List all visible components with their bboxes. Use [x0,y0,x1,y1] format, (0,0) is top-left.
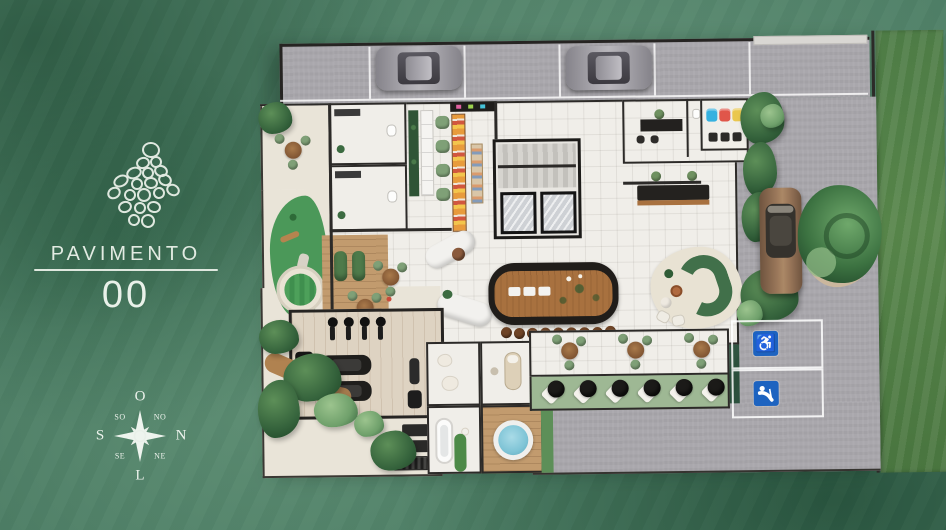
bar-stool [514,328,525,339]
lounger-seat [644,379,661,396]
market-fridge-counter [450,101,496,112]
patio-table [285,142,302,159]
terrace-table [627,341,644,358]
terrace-chair [564,360,574,370]
hedge-tree-light [760,104,784,128]
compass-southeast-label: SE [115,452,125,461]
bar-stool [501,327,512,338]
market-gondola-shelf [451,114,466,232]
patio-chair [275,134,285,144]
reception-chair [687,171,697,181]
reception-desk-front [637,200,709,206]
compass-rose: O N L S NO NE SE SO [92,388,188,484]
garden-chair [347,291,357,301]
car-roof [596,56,622,80]
compass-east-label: L [135,468,144,485]
garden-chair [385,287,395,297]
bike-frame [378,326,383,340]
plant-pot [337,145,345,153]
compass-south-label: S [96,428,104,445]
garden-chair [373,261,383,271]
compass-west-label: O [135,389,146,406]
compass-southwest-label: SO [114,413,125,422]
parked-car-gray [565,45,652,90]
gym-rack [408,390,422,408]
parked-car-gray [375,46,462,91]
lawn-stripes [875,30,946,473]
terrace-chair [618,334,628,344]
bar-sink [538,287,550,296]
sink-counter [335,171,361,178]
bar-sink [523,287,535,296]
fridge-item [480,104,485,108]
waste-bin [733,132,742,141]
entry-wall [753,35,867,45]
grass-strip [541,401,554,473]
rug-plant [664,269,673,278]
terrace-chair [552,334,562,344]
putting-green [284,273,316,305]
spin-bike [359,317,371,341]
guest-chair [637,135,645,143]
terrace-table [693,341,710,358]
recycle-bin-blue [706,109,717,122]
spin-bike [327,317,339,341]
bike-frame [330,326,335,340]
plant-pot [337,211,345,219]
lounger-seat [548,380,565,397]
scene: PAVIMENTO 00 O N L S NO NE SE SO [0,0,946,530]
deck-lounger [334,251,347,281]
terrace-chair [684,333,694,343]
market-pouf [436,140,450,153]
bar-item [578,274,582,278]
terrace-chair [630,360,640,370]
market-product-shelf [471,143,484,203]
market-pouf [435,116,449,129]
toilet [386,124,396,136]
grass-tuft [454,434,466,472]
car-roof [406,56,432,80]
restroom-2 [329,164,408,231]
compass-northeast-label: NE [154,452,166,461]
market-pouf [436,188,450,201]
spa-pouf [437,354,452,367]
reception-desk [637,185,709,201]
page-title: PAVIMENTO [28,243,224,266]
bike-frame [346,326,351,340]
wheelchair-glyph: ♿ [755,335,776,352]
copper-side-table [670,285,682,297]
office-desk [640,119,682,132]
reception-chair [651,171,661,181]
bathtub-basin [440,425,448,457]
lounger-seat [676,379,693,396]
massage-room-1 [426,341,481,406]
wheelchair-icon: ♿ [753,331,778,356]
senior-person-glyph [756,383,777,404]
compass-north-label: N [176,428,187,445]
patio-chair [288,160,298,170]
fridge-item [468,105,473,109]
terrace-chair [696,359,706,369]
restroom-1 [328,102,407,165]
spin-bike [375,317,387,341]
lounge-plant [442,290,452,299]
market-plant-shelf [408,110,419,196]
floor-number: 00 [28,274,224,317]
stair-elevator-core [493,138,582,239]
patio-chair [301,136,311,146]
compass-northwest-label: NO [154,413,167,422]
waste-bin [709,133,718,142]
elevator-cab-1 [500,192,537,234]
title-divider [34,269,218,271]
garden-table [382,268,399,285]
lounge-pouf [452,248,465,261]
spa-stool [490,367,498,375]
senior-icon [754,381,779,406]
elevator-cab-2 [540,191,577,233]
bar-counter [488,262,619,326]
visitor-car-brown [759,188,802,295]
spa-pouf [441,376,458,391]
white-pouf [661,297,672,308]
floor-plan: ♿ [253,30,946,478]
bar-item [566,276,571,281]
market-pouf [436,164,450,177]
toilet [387,190,397,202]
office-bath-sink [692,109,700,119]
play-toy [289,214,296,221]
lounger-seat [612,380,629,397]
car-windshield [767,206,793,213]
lounger-seat [708,379,725,396]
bathtub [435,418,454,464]
recycle-bin-red [719,108,730,121]
garden-chair [397,262,407,272]
terrace-chair [642,335,652,345]
terrace-table [561,342,578,359]
market-appliances [420,110,434,196]
terrace-chair [708,335,718,345]
deck-lounger [352,251,365,281]
fridge-item [456,105,461,109]
hot-tub [493,420,533,460]
tree-bed [797,185,884,296]
hot-tub-water [498,425,528,455]
logo-pebble-icon [103,140,199,240]
bar-sink [508,287,520,296]
driveway-bottom [532,402,881,475]
terrace-chair [576,336,586,346]
garden-tree [258,380,301,439]
car-roof [770,216,792,246]
massage-pillow [507,355,518,363]
waste-bin [721,132,730,141]
spin-bike [343,317,355,341]
lounger-seat [580,380,597,397]
hot-tub-deck [481,405,544,474]
bike-frame [362,326,367,340]
interior-wall [494,101,497,139]
guest-chair [651,135,659,143]
office-chair [654,109,664,119]
sink-counter [334,109,360,116]
gym-bench [409,358,419,384]
garden-chair [371,293,381,303]
toy-dot [387,297,392,302]
